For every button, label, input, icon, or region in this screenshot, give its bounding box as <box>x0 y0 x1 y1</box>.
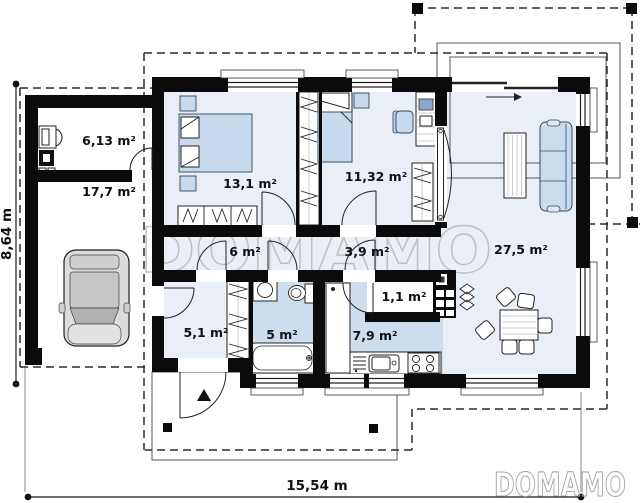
floor-plan-page: DOMAMO <box>0 0 640 503</box>
desk <box>416 92 437 146</box>
label-hall: 6 m² <box>229 244 261 259</box>
label-boiler-room: 6,13 m² <box>82 133 136 148</box>
label-kitchen: 7,9 m² <box>353 328 398 343</box>
label-vestibule: 5,1 m² <box>184 325 229 340</box>
label-pantry: 1,1 m² <box>382 289 427 304</box>
entrance-arrow-icon <box>197 389 211 401</box>
sofa <box>540 120 572 212</box>
label-bedroom: 13,1 m² <box>223 176 277 191</box>
stove <box>408 353 439 373</box>
car <box>59 250 130 346</box>
radiator <box>460 284 474 310</box>
kitchen-sink <box>369 355 399 372</box>
closet-strip-bedroom2 <box>412 163 433 221</box>
label-bedroom2: 11,32 m² <box>345 169 407 184</box>
floor-plan-drawing: DOMAMO <box>0 0 640 503</box>
width-dimension-label: 15,54 m <box>286 478 347 494</box>
label-living-room: 27,5 m² <box>494 242 548 257</box>
closet-strip-bedroom <box>299 92 319 225</box>
bedroom-wardrobe <box>178 206 257 227</box>
boiler-unit <box>39 126 62 176</box>
height-dimension-label: 8,64 m <box>0 208 15 260</box>
vestibule-wardrobe <box>227 277 249 372</box>
label-garage: 17,7 m² <box>82 184 136 199</box>
watermark-corner: DOMAMO <box>494 465 626 503</box>
desk-chair <box>393 111 413 133</box>
label-corridor: 3,9 m² <box>345 244 390 259</box>
label-bathroom: 5 m² <box>266 327 298 342</box>
washbasin <box>253 279 277 301</box>
coffee-table <box>504 133 526 198</box>
bedroom-furniture <box>178 96 257 227</box>
dimension-height: 8,64 m <box>0 81 19 388</box>
sink-dot <box>331 287 335 291</box>
bathtub <box>249 343 318 373</box>
